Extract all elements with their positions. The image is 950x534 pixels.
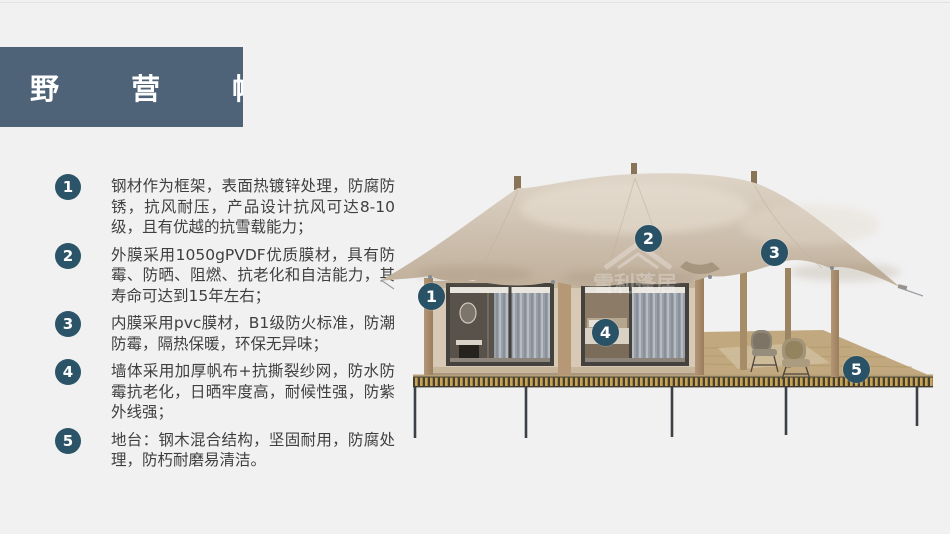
platform-base xyxy=(413,375,933,439)
steel-legs xyxy=(415,387,917,438)
porch-post-front xyxy=(831,270,839,377)
callout-5: 5 xyxy=(843,356,870,383)
corner-post-right xyxy=(695,278,704,375)
feature-item-4: 4 墙体采用加厚帆布+抗撕裂纱网，防水防霉抗老化，日晒牢度高，耐候性强，防紫外线… xyxy=(55,361,400,423)
deck-floor xyxy=(700,330,933,377)
valance xyxy=(450,287,550,293)
window-bathroom xyxy=(446,283,554,366)
feature-text: 外膜采用1050gPVDF优质膜材，具有防霉、防晒、阻燃、抗老化和自洁能力，其寿… xyxy=(111,245,395,307)
feature-number-badge: 2 xyxy=(55,243,81,269)
feature-number-badge: 4 xyxy=(55,359,81,385)
callout-2: 2 xyxy=(635,225,662,252)
feature-item-1: 1 钢材作为框架，表面热镀锌处理，防腐防锈，抗风耐压，产品设计抗风可达8-10级… xyxy=(55,176,400,238)
feature-item-5: 5 地台：钢木混合结构，坚固耐用，防腐处理，防朽耐磨易清洁。 xyxy=(55,430,400,471)
tent-illustration: 雪利蓬居 xyxy=(380,150,950,450)
feature-item-3: 3 内膜采用pvc膜材，B1级防火标准，防潮防霉，隔热保暖，环保无异味； xyxy=(55,313,400,354)
feature-text: 内膜采用pvc膜材，B1级防火标准，防潮防霉，隔热保暖，环保无异味； xyxy=(111,313,395,354)
curtain-right xyxy=(632,287,685,362)
curtain-left xyxy=(494,287,550,362)
feature-list: 1 钢材作为框架，表面热镀锌处理，防腐防锈，抗风耐压，产品设计抗风可达8-10级… xyxy=(55,176,400,478)
title-banner: 野 营 帐 篷 xyxy=(0,47,243,127)
feature-item-2: 2 外膜采用1050gPVDF优质膜材，具有防霉、防晒、阻燃、抗老化和自洁能力，… xyxy=(55,245,400,307)
vanity xyxy=(456,340,482,345)
top-divider xyxy=(0,2,950,3)
watermark-text: 雪利蓬居 xyxy=(593,272,677,296)
callout-4: 4 xyxy=(592,319,619,346)
mid-post xyxy=(558,281,571,375)
mirror xyxy=(460,303,476,323)
feature-text: 钢材作为框架，表面热镀锌处理，防腐防锈，抗风耐压，产品设计抗风可达8-10级，且… xyxy=(111,176,395,238)
feature-text: 地台：钢木混合结构，坚固耐用，防腐处理，防朽耐磨易清洁。 xyxy=(111,430,395,471)
feature-number-badge: 3 xyxy=(55,311,81,337)
callout-3: 3 xyxy=(761,239,788,266)
pole-tip-left xyxy=(514,176,521,190)
porch-post-mid xyxy=(740,262,747,370)
tent-figure: 雪利蓬居 1 2 3 4 5 xyxy=(380,150,950,450)
feature-number-badge: 1 xyxy=(55,174,81,200)
pole-tip-right xyxy=(751,171,757,184)
feature-number-badge: 5 xyxy=(55,428,81,454)
callout-1: 1 xyxy=(418,283,445,310)
feature-text: 墙体采用加厚帆布+抗撕裂纱网，防水防霉抗老化，日晒牢度高，耐候性强，防紫外线强； xyxy=(111,361,395,423)
slide: 野 营 帐 篷 1 钢材作为框架，表面热镀锌处理，防腐防锈，抗风耐压，产品设计抗… xyxy=(0,0,950,534)
page-title: 野 营 帐 篷 xyxy=(30,66,243,108)
